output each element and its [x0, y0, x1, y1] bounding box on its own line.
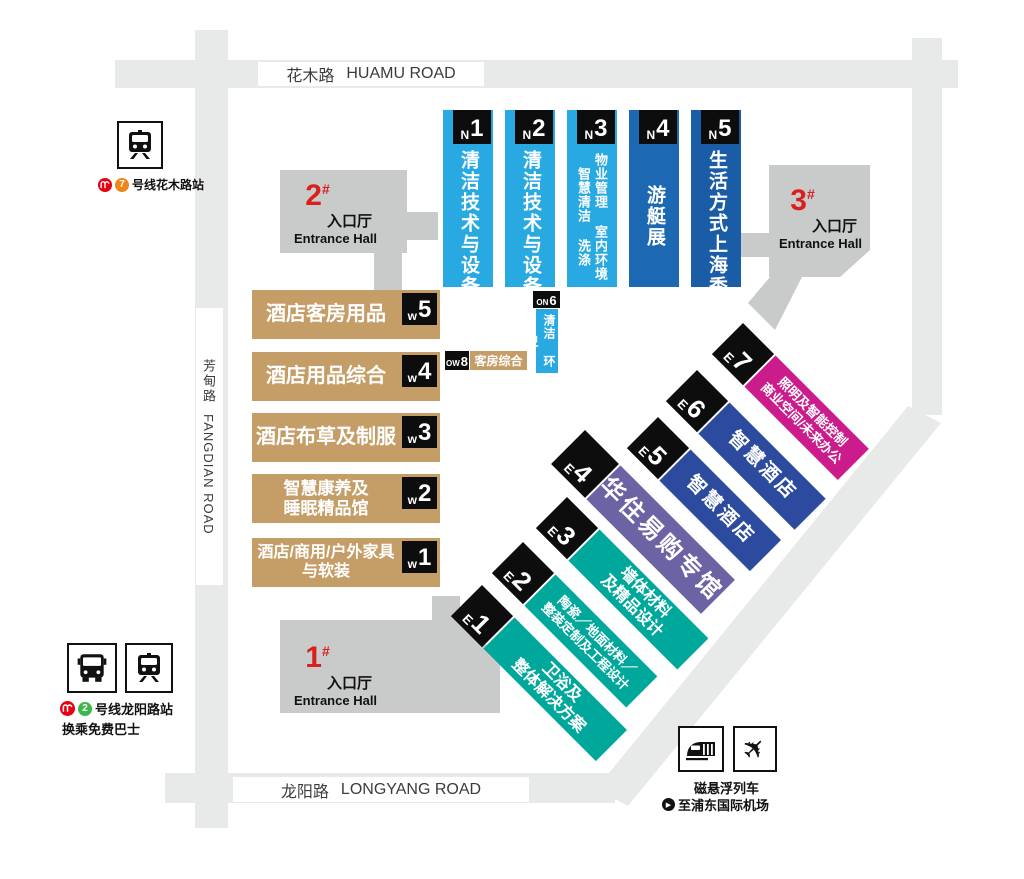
hall-n2-badge: N2: [515, 110, 553, 144]
hall-n3-name: 物业管理 室内环境 智慧清洁 洗涤: [575, 150, 609, 283]
entrance-hall-1-label: 1# 入口厅 Entrance Hall: [283, 643, 388, 709]
road-label-longyang-zh: 龙阳路: [281, 778, 329, 802]
hall-w5-badge: w5: [402, 293, 437, 325]
hall-ow8-name: 客房综合: [470, 351, 527, 370]
plane-icon: ✈: [737, 731, 773, 767]
maglev-box: [678, 726, 724, 772]
hall-w1: 酒店/商用/户外家具与软装 w1: [252, 538, 440, 587]
hall-on6-name: 清洁 环卫: [536, 309, 558, 373]
hall-w4: 酒店用品综合 w4: [252, 352, 440, 401]
longyang-station-note: 换乘免费巴士: [62, 719, 140, 738]
entrance-2-en: Entrance Hall: [294, 232, 377, 247]
hall-w3-name: 酒店布草及制服: [252, 413, 400, 462]
hall-n4-name: 游艇展: [642, 150, 666, 283]
line-2-badge: 2: [78, 702, 92, 716]
hall-w3-badge: w3: [402, 416, 437, 448]
maglev-icon: [684, 734, 718, 764]
road-label-longyang-en: LONGYANG ROAD: [341, 781, 481, 799]
hall-ow8-badge: OW8: [445, 351, 469, 370]
hall-n5-badge: N5: [701, 110, 739, 144]
huamu-station-box: [117, 121, 163, 169]
road-huamu: [115, 60, 958, 88]
hall-n2-name: 清洁技术与设备: [518, 150, 542, 283]
entrance-1-en: Entrance Hall: [294, 694, 377, 709]
hall-w1-name: 酒店/商用/户外家具与软装: [252, 538, 400, 587]
hall-w4-name: 酒店用品综合: [252, 352, 400, 401]
road-label-huamu: 花木路 HUAMU ROAD: [258, 62, 484, 86]
entrance-1-number: 1#: [305, 643, 329, 673]
road-label-longyang: 龙阳路 LONGYANG ROAD: [233, 777, 529, 802]
road-label-huamu-en: HUAMU ROAD: [346, 65, 455, 83]
hall-ow8: OW8 客房综合: [445, 351, 527, 370]
entrance-hall-3-arm: [737, 233, 771, 257]
bus-box: [67, 643, 117, 693]
metro-logo-icon: [60, 701, 75, 716]
hall-n1: N1 清洁技术与设备: [443, 110, 493, 287]
hall-n3: N3 物业管理 室内环境 智慧清洁 洗涤: [567, 110, 617, 287]
hall-n1-name: 清洁技术与设备: [456, 150, 480, 283]
entrance-1-zh: 入口厅: [327, 675, 372, 692]
hall-w2-badge: w2: [402, 477, 437, 509]
road-label-fangdian-zh: 芳甸路: [201, 359, 216, 404]
train-icon: [133, 652, 165, 684]
hall-on6: 清洁 环卫: [536, 309, 558, 373]
train-box: [125, 643, 173, 693]
maglev-destination-line: ▶ 至浦东国际机场: [662, 795, 769, 814]
hall-w4-badge: w4: [402, 355, 437, 387]
hall-w3: 酒店布草及制服 w3: [252, 413, 440, 462]
road-right-vertical: [912, 38, 942, 415]
entrance-3-en: Entrance Hall: [779, 237, 862, 252]
hall-w5-name: 酒店客房用品: [252, 290, 400, 339]
maglev-destination-text: 至浦东国际机场: [678, 795, 769, 814]
entrance-hall-3-label: 3# 入口厅 Entrance Hall: [768, 186, 873, 252]
hall-w1-badge: w1: [402, 541, 437, 573]
train-icon: [124, 129, 156, 161]
huamu-station-text: 号线花木路站: [132, 176, 204, 193]
bus-icon: [75, 651, 109, 685]
hall-n4-badge: N4: [639, 110, 677, 144]
entrance-2-number: 2#: [305, 181, 329, 211]
hall-n5-name: 生活方式上海秀: [704, 150, 728, 283]
hall-n1-badge: N1: [453, 110, 491, 144]
hall-on6-badge: ON6: [533, 291, 560, 308]
airport-box: ✈: [733, 726, 777, 772]
road-label-huamu-zh: 花木路: [286, 62, 334, 86]
metro-logo-icon: [98, 178, 112, 192]
entrance-3-number: 3#: [790, 186, 814, 216]
longyang-station-text: 号线龙阳路站: [95, 699, 173, 718]
hall-n2: N2 清洁技术与设备: [505, 110, 555, 287]
hall-w5: 酒店客房用品 w5: [252, 290, 440, 339]
hall-n3-badge: N3: [577, 110, 615, 144]
entrance-3-zh: 入口厅: [812, 218, 857, 235]
longyang-station-label: 2 号线龙阳路站: [60, 699, 173, 718]
hall-w2-name: 智慧康养及睡眠精品馆: [252, 474, 400, 523]
entrance-hall-2-label: 2# 入口厅 Entrance Hall: [283, 181, 388, 247]
line-7-badge: 7: [115, 178, 129, 192]
hall-w2: 智慧康养及睡眠精品馆 w2: [252, 474, 440, 523]
huamu-station-label: 7 号线花木路站: [98, 176, 204, 193]
entrance-2-zh: 入口厅: [327, 213, 372, 230]
hall-n4: N4 游艇展: [629, 110, 679, 287]
play-icon: ▶: [662, 798, 675, 811]
entrance-hall-3-leg: [748, 277, 802, 330]
road-label-fangdian: 芳甸路FANGDIAN ROAD: [196, 308, 223, 585]
hall-n5: N5 生活方式上海秀: [691, 110, 741, 287]
expo-floor-map: 花木路 HUAMU ROAD 芳甸路FANGDIAN ROAD 龙阳路 LONG…: [0, 0, 1024, 879]
road-label-fangdian-en: FANGDIAN ROAD: [201, 414, 216, 535]
